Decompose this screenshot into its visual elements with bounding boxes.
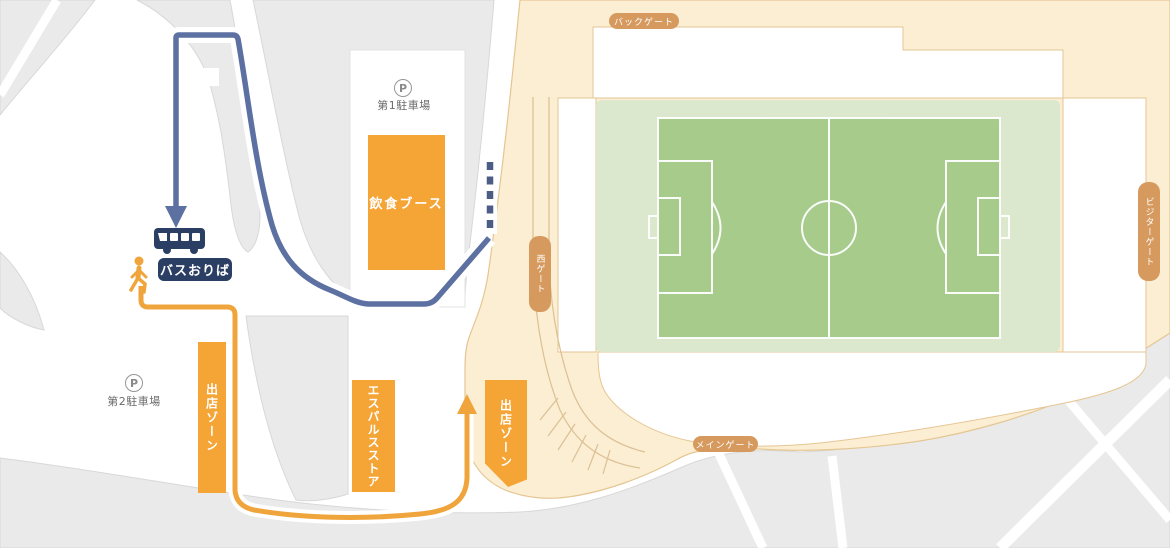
vendor-zone-east-label: 出店ゾーン	[498, 399, 515, 469]
visitor-gate-pill: ビジターゲート	[1138, 182, 1160, 281]
vendor-zone-west-label: 出店ゾーン	[204, 383, 221, 453]
terrain-left-wedge	[0, 252, 44, 330]
bus-stop-badge: バスおりば	[158, 258, 232, 281]
east-stand	[1063, 98, 1146, 352]
arrow-down-icon	[165, 206, 187, 228]
main-gate-label: メインゲート	[695, 438, 755, 451]
west-stand	[558, 98, 596, 352]
spulse-store-label: エスパルスストア	[365, 384, 382, 488]
wedge-notch	[181, 68, 219, 86]
parking1-icon: P	[394, 79, 412, 97]
west-gate-label: 西ゲート	[534, 254, 547, 294]
back-gate-label: バックゲート	[614, 15, 674, 28]
food-booth-label: 飲食ブース	[369, 193, 443, 212]
parking1-label: 第1駐車場	[360, 97, 448, 113]
visitor-gate-label: ビジターゲート	[1143, 197, 1156, 267]
west-gate-pill: 西ゲート	[529, 236, 551, 312]
spulse-store-box: エスパルスストア	[352, 380, 395, 492]
parking2-icon: P	[125, 374, 143, 392]
bus-stop-label: バスおりば	[160, 260, 230, 279]
terrain-central-lower	[246, 316, 348, 501]
food-booth-box: 飲食ブース	[368, 135, 445, 270]
bus-icon	[154, 228, 205, 254]
parking2-label: 第2駐車場	[90, 393, 178, 409]
back-gate-pill: バックゲート	[609, 13, 679, 29]
pitch	[596, 100, 1060, 352]
stadium-access-map: バックゲート 西ゲート ビジターゲート メインゲート P 第1駐車場 P 第2駐…	[0, 0, 1170, 548]
main-gate-pill: メインゲート	[693, 436, 758, 452]
vendor-zone-west-box: 出店ゾーン	[198, 342, 226, 493]
